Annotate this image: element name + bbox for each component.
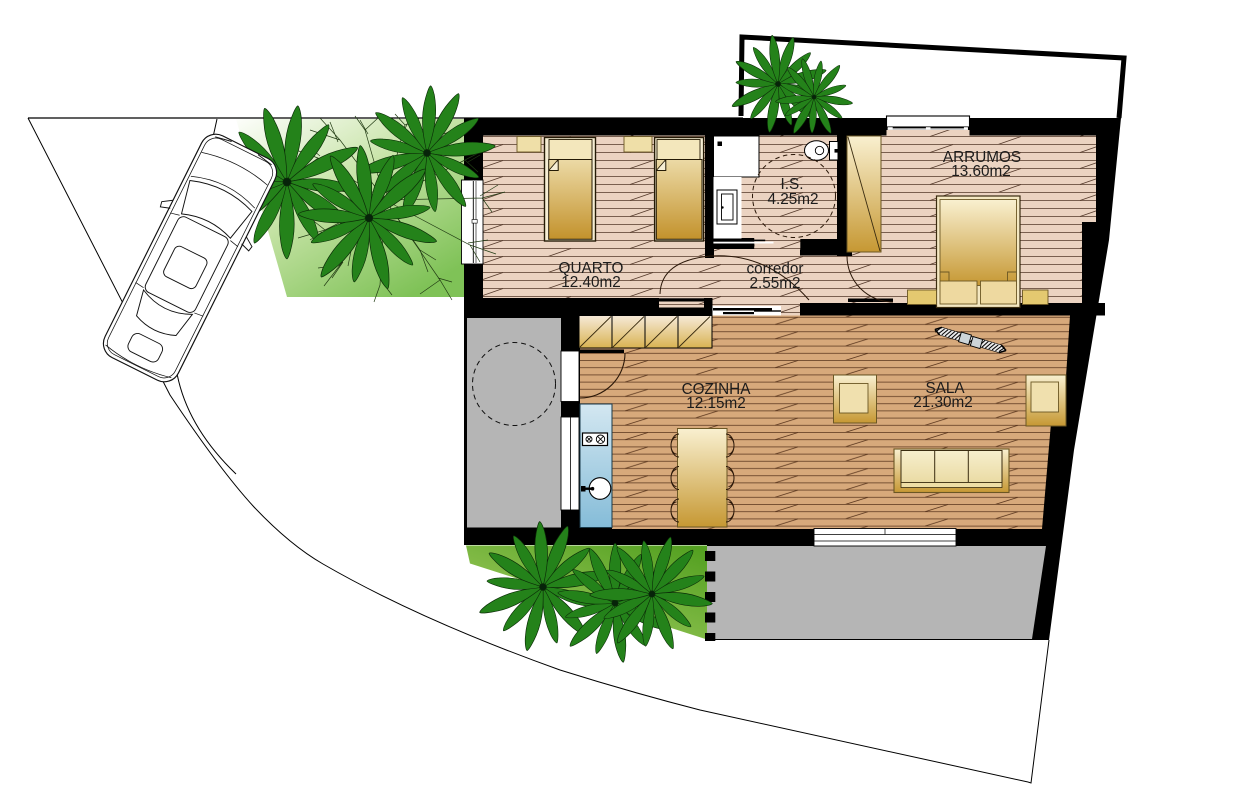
svg-text:12.40m2: 12.40m2 [561, 274, 621, 291]
svg-text:4.25m2: 4.25m2 [767, 191, 818, 208]
svg-text:13.60m2: 13.60m2 [951, 163, 1011, 180]
svg-text:2.55m2: 2.55m2 [749, 275, 800, 292]
svg-text:12.15m2: 12.15m2 [686, 395, 746, 412]
svg-text:21.30m2: 21.30m2 [913, 394, 973, 411]
